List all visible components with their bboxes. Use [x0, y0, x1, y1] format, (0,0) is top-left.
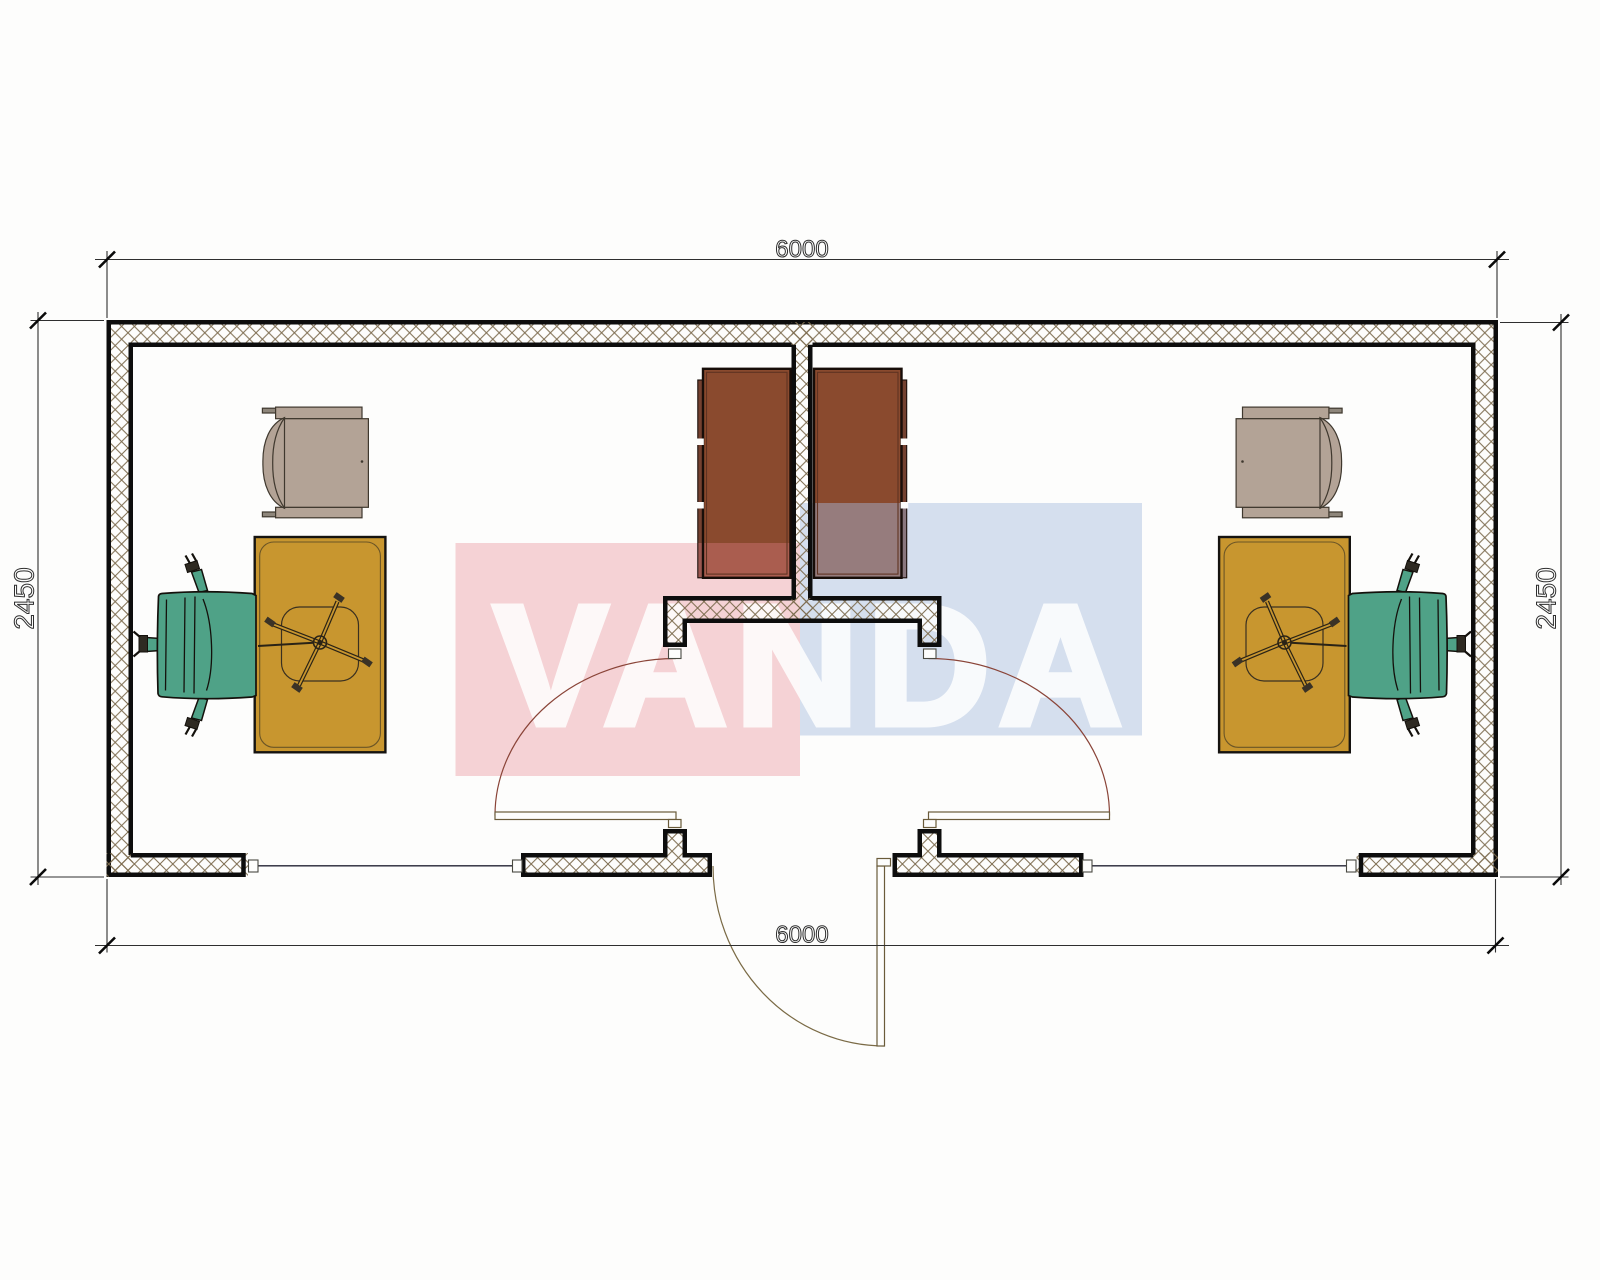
svg-text:2450: 2450	[1531, 567, 1562, 629]
svg-text:6000: 6000	[775, 922, 828, 949]
svg-text:2450: 2450	[9, 567, 40, 629]
svg-text:6000: 6000	[775, 236, 828, 263]
